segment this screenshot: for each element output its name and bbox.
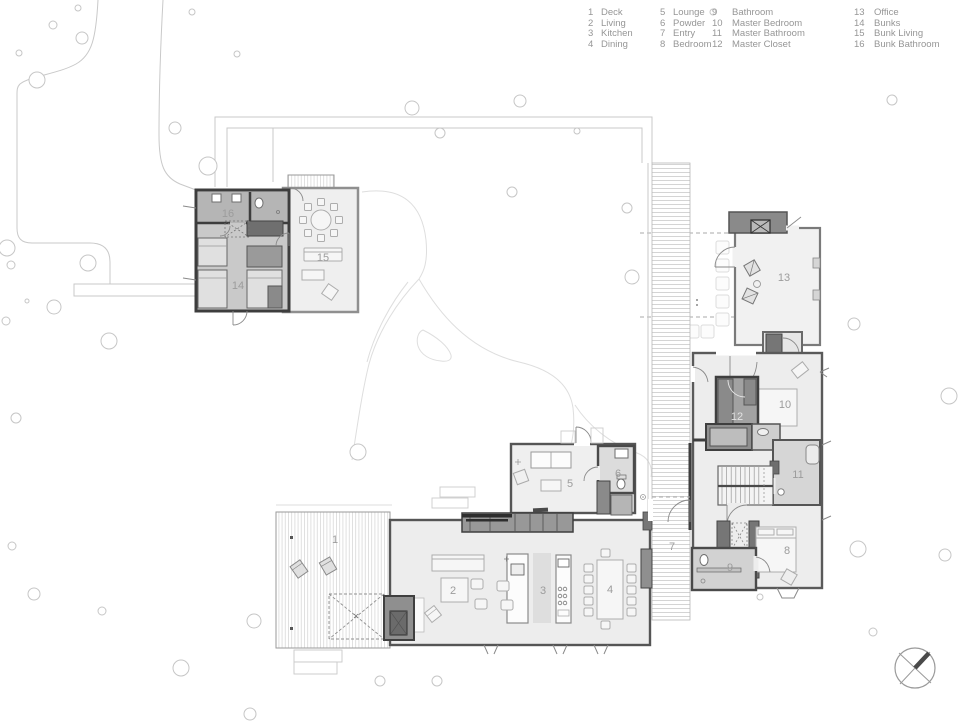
- stepping-stones: [686, 241, 729, 338]
- office-room: [715, 212, 820, 345]
- tree: [622, 203, 632, 213]
- legend-item: 4Dining: [588, 40, 660, 51]
- tree: [887, 95, 897, 105]
- tree: [80, 255, 96, 271]
- bedroom-wing: [691, 351, 831, 599]
- toilet: [700, 555, 708, 566]
- tree: [75, 5, 81, 11]
- tree: [11, 413, 21, 423]
- room-number-label: 16: [222, 208, 234, 220]
- tree: [625, 270, 639, 284]
- tree: [29, 72, 45, 88]
- bunk-bed-room: [183, 190, 289, 325]
- stairs: [718, 466, 773, 505]
- legend-item-number: 16: [854, 40, 874, 51]
- legend-item-label: Bedroom: [673, 40, 712, 51]
- tree: [25, 299, 29, 303]
- wardrobe: [247, 221, 283, 236]
- tree: [76, 32, 88, 44]
- tree: [0, 240, 15, 256]
- room-number-label: 6: [615, 468, 621, 480]
- north-arrow-icon: [895, 648, 935, 688]
- tree: [2, 317, 10, 325]
- room-number-label: 7: [669, 541, 675, 553]
- tree: [8, 542, 16, 550]
- tree: [507, 187, 517, 197]
- legend-column: 5Lounge6Powder7Entry8Bedroom: [660, 8, 712, 51]
- stepping-stone: [716, 295, 729, 308]
- room-number-label: 15: [317, 252, 329, 264]
- room-number-label: 8: [784, 545, 790, 557]
- bathtub: [806, 445, 819, 464]
- toilet: [778, 489, 784, 495]
- tree: [939, 549, 951, 561]
- living-wing: [276, 499, 690, 674]
- tree: [244, 708, 256, 720]
- legend-item-number: 8: [660, 40, 673, 51]
- room-number-label: 5: [567, 478, 573, 490]
- legend-item-label: Bunk Bathroom: [874, 40, 939, 51]
- tree: [432, 676, 442, 686]
- legend-item: 12Master Closet: [712, 40, 854, 51]
- stepping-stone: [716, 241, 729, 254]
- tree: [16, 50, 22, 56]
- bunk-bed: [198, 238, 227, 266]
- legend-item-number: 12: [712, 40, 732, 51]
- sink: [232, 194, 241, 202]
- tree: [49, 21, 57, 29]
- room-number-label: 3: [540, 585, 546, 597]
- deck: [276, 512, 390, 648]
- sofa: [432, 555, 484, 571]
- tree: [757, 594, 763, 600]
- legend-item-label: Dining: [601, 40, 628, 51]
- legend-column: 13Office14Bunks15Bunk Living16Bunk Bathr…: [854, 8, 950, 51]
- room-number-label: 9: [727, 562, 733, 574]
- legend-item: 8Bedroom: [660, 40, 712, 51]
- room-number-label: 12: [731, 411, 743, 423]
- legend-item: 13Office: [854, 8, 950, 19]
- bunk-living-room: [283, 175, 358, 312]
- tree: [189, 9, 195, 15]
- tree: [850, 541, 866, 557]
- tree: [405, 101, 419, 115]
- tree: [234, 51, 240, 57]
- legend-column: 9Bathroom10Master Bedroom11Master Bathro…: [712, 8, 854, 51]
- sink: [558, 559, 569, 567]
- legend-item-label: Master Closet: [732, 40, 791, 51]
- legend-item: 16Bunk Bathroom: [854, 40, 950, 51]
- sink: [615, 449, 628, 458]
- bunk-bed: [198, 270, 227, 308]
- tree: [350, 444, 366, 460]
- room-number-label: 11: [792, 469, 803, 481]
- toilet: [617, 479, 625, 489]
- room-number-label: 14: [232, 280, 244, 292]
- tree: [869, 628, 877, 636]
- tree: [199, 157, 217, 175]
- tree: [101, 333, 117, 349]
- tree: [848, 318, 860, 330]
- site-features: [17, 0, 738, 477]
- floor-plan-page: 1Deck2Living3Kitchen4Dining5Lounge6Powde…: [0, 0, 960, 725]
- tree: [169, 122, 181, 134]
- room-number-label: 10: [779, 399, 791, 411]
- lounge-wing: [432, 427, 635, 515]
- bunk-house: [183, 175, 358, 325]
- sink: [212, 194, 221, 202]
- stepping-stone: [716, 313, 729, 326]
- tree: [173, 660, 189, 676]
- tree: [941, 388, 957, 404]
- tree: [28, 588, 40, 600]
- room-number-label: 1: [332, 534, 338, 546]
- tree: [98, 607, 106, 615]
- stepping-stone: [716, 259, 729, 272]
- bunk-bed: [247, 246, 282, 267]
- room-number-label: 13: [778, 272, 790, 284]
- connector-hall: [763, 332, 802, 355]
- tree: [247, 614, 261, 628]
- toilet: [255, 198, 263, 208]
- room-number-label: 2: [450, 585, 456, 597]
- deck-steps: [294, 650, 342, 662]
- tree: [574, 128, 580, 134]
- tree: [514, 95, 526, 107]
- site-plan-drawing: 12345678910111213141516: [0, 0, 960, 725]
- stepping-stone: [701, 325, 714, 338]
- stepping-stone: [716, 277, 729, 290]
- tree: [7, 261, 15, 269]
- tree: [435, 128, 445, 138]
- legend-column: 1Deck2Living3Kitchen4Dining: [588, 8, 660, 51]
- legend: 1Deck2Living3Kitchen4Dining5Lounge6Powde…: [588, 8, 950, 51]
- legend-item-number: 4: [588, 40, 601, 51]
- tree: [47, 300, 61, 314]
- room-number-label: 4: [607, 584, 613, 596]
- tree: [375, 676, 385, 686]
- sink: [758, 429, 769, 436]
